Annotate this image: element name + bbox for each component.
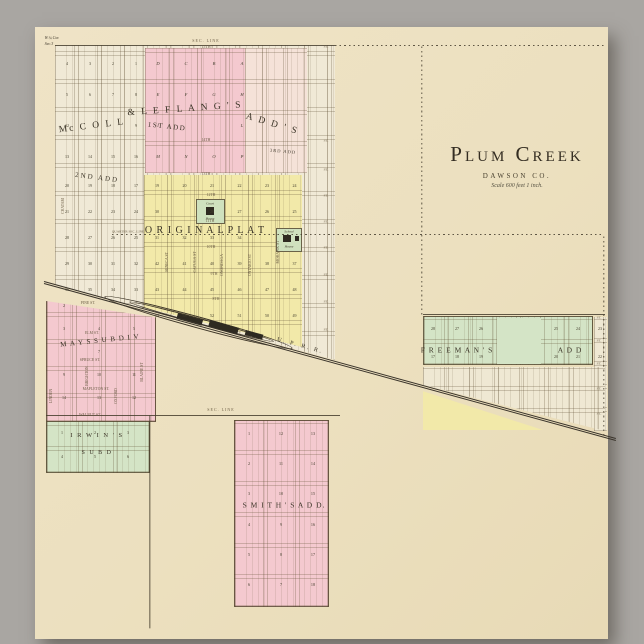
blocks-smiths-cell: 11 — [279, 462, 283, 466]
blocks-original-plat-cell: 22 — [238, 184, 242, 188]
blocks-irwins-cell: 1 — [61, 431, 63, 435]
blocks-smiths-cell: 14 — [311, 462, 315, 466]
blocks-second-add-cell: 28 — [65, 236, 69, 240]
label-sec-line-bottom: SEC. LINE — [207, 408, 234, 412]
blocks-irwins-cell: 4 — [61, 455, 63, 459]
blocks-first-add-cell: E — [157, 93, 160, 98]
blocks-first-add-cell: C — [184, 62, 187, 67]
blocks-second-add-cell: 30 — [88, 262, 92, 266]
blocks-original-plat-cell: 32 — [183, 236, 187, 240]
zone-irwins-sub — [46, 421, 150, 473]
blocks-second-add-cell: 17 — [134, 184, 138, 188]
blocks-first-add-cell: B — [213, 62, 216, 67]
blocks-freemans-east-cell: 20 — [554, 355, 558, 359]
street-end-marks-west: ST. — [324, 220, 329, 224]
blocks-freemans-west-cell: 28 — [431, 327, 435, 331]
blocks-smiths-cell: 7 — [280, 583, 282, 587]
blocks-mccoll-cell: 9 — [135, 124, 137, 128]
blocks-original-plat-cell: 52 — [210, 314, 214, 318]
blocks-original-plat-cell: 33 — [210, 236, 214, 240]
label-quarter-sec-line: QUARTER SEC. LINE — [112, 230, 144, 233]
map-scale: Scale 600 feet 1 inch. — [428, 183, 606, 189]
blocks-freemans-west-cell: 19 — [479, 355, 483, 359]
blocks-original-plat-cell: 54 — [155, 314, 159, 318]
blocks-first-add-cell: F — [185, 93, 188, 98]
blocks-smiths-cell: 18 — [311, 583, 315, 587]
blocks-original-plat-cell: 25 — [293, 210, 297, 214]
label-ontario-st: ONTARIO ST — [249, 254, 253, 276]
street-end-marks-west: ST. — [324, 168, 329, 172]
blocks-second-add-cell: 23 — [111, 210, 115, 214]
blocks-second-add-cell: 29 — [65, 262, 69, 266]
blocks-second-add-cell: 18 — [111, 184, 115, 188]
blocks-original-plat-cell: 53 — [183, 314, 187, 318]
sec-line-top — [55, 45, 335, 46]
blocks-first-add-cell: A — [241, 62, 244, 67]
label-blaine-st: BLAINE ST — [141, 362, 145, 381]
blocks-mccoll-cell: 6 — [89, 93, 91, 97]
label-brighton-st: BRIGHTON — [86, 366, 90, 386]
blocks-mccoll-cell: 5 — [66, 93, 68, 97]
blocks-irwins-cell: 3 — [127, 431, 129, 435]
plat-map: SEC. LINE15THW.¼ Cor.Sec.3Mc C O L L& L … — [0, 0, 644, 644]
blocks-original-plat-cell: 21 — [210, 184, 214, 188]
label-spruce-st: SPRUCE ST. — [80, 359, 100, 363]
blocks-second-add-cell: 36 — [65, 288, 69, 292]
blocks-original-plat-cell: 26 — [265, 210, 269, 214]
blocks-original-plat-cell: 39 — [238, 262, 242, 266]
blocks-mccoll-cell: 7 — [112, 93, 114, 97]
blocks-freemans-west-cell: 18 — [455, 355, 459, 359]
blocks-mays-cell: 13 — [97, 396, 101, 400]
label-13th-st: 13TH — [202, 173, 211, 177]
blocks-first-add-cell: G — [212, 93, 215, 98]
blocks-mays-cell: 5 — [133, 327, 135, 331]
blocks-first-add-cell: H — [240, 93, 243, 98]
blocks-second-add-cell: 35 — [88, 288, 92, 292]
blocks-mays-cell: 7 — [98, 350, 100, 354]
label-pine-st: PINE ST. — [81, 302, 96, 306]
label-elm-st: ELM ST. — [85, 332, 99, 336]
blocks-smiths-cell: 1 — [248, 432, 250, 436]
blocks-original-plat-cell: 48 — [293, 288, 297, 292]
blocks-smiths-cell: 12 — [279, 432, 283, 436]
street-end-marks-west: ST. — [324, 194, 329, 198]
blocks-irwins-cell: 2 — [94, 431, 96, 435]
blocks-original-plat-cell: 38 — [265, 262, 269, 266]
blocks-second-add-cell: 27 — [88, 236, 92, 240]
blocks-freemans-west-cell: 17 — [431, 355, 435, 359]
blocks-freemans-east-cell: 21 — [576, 355, 580, 359]
label-court-house-1: Court — [206, 202, 214, 205]
blocks-original-plat-cell: 47 — [265, 288, 269, 292]
blocks-second-add-cell: 20 — [65, 184, 69, 188]
blocks-first-add-cell: L — [241, 124, 244, 129]
blocks-mccoll-cell: 2 — [112, 62, 114, 66]
map-title: Plum Creek — [428, 142, 606, 167]
blocks-original-plat-cell: 46 — [238, 288, 242, 292]
street-end-marks-west: ST. — [324, 246, 329, 250]
label-irwins-2: S U B D — [81, 450, 112, 456]
blocks-smiths-cell: 4 — [248, 522, 250, 526]
blocks-smiths-cell: 2 — [248, 462, 250, 466]
blocks-original-plat-cell: 42 — [155, 262, 159, 266]
blocks-mccoll-cell: 1 — [135, 62, 137, 66]
label-school-house-1: School — [284, 230, 293, 233]
label-oxford-st: OXFORD — [115, 388, 119, 404]
blocks-smiths-cell: 6 — [248, 583, 250, 587]
blocks-first-add-cell: P — [241, 155, 244, 160]
blocks-mccoll-cell: 14 — [88, 155, 92, 159]
blocks-mays-cell: 12 — [132, 396, 136, 400]
label-12th-st: 12TH — [207, 194, 216, 198]
blocks-freemans-west-cell: 26 — [479, 327, 483, 331]
meridian-line-south — [150, 415, 151, 628]
blocks-mays-cell: 2 — [63, 304, 65, 308]
label-9th-st: 9TH — [211, 273, 218, 277]
blocks-mccoll-cell: 8 — [135, 93, 137, 97]
label-original-plat: O R I G I N A L P L A T — [145, 226, 265, 236]
blocks-second-add-cell: 32 — [134, 262, 138, 266]
blocks-original-plat-cell: 24 — [293, 184, 297, 188]
blocks-freemans-east-cell: 24 — [576, 327, 580, 331]
street-end-marks-west: ST. — [324, 45, 329, 49]
blocks-mccoll-cell: 4 — [66, 62, 68, 66]
zone-mays-sub — [46, 296, 156, 422]
label-cayuga-st: CAYUGA ST — [194, 251, 198, 272]
section-line-vertical — [422, 46, 423, 315]
label-corner-note-1: W.¼ Cor. — [45, 36, 60, 40]
label-mapleton-st: MAPLETON ST. — [83, 388, 110, 392]
blocks-mccoll-cell: 15 — [111, 155, 115, 159]
label-freemans-2: A D D — [558, 346, 583, 354]
icon-school-annex — [295, 236, 299, 241]
street-end-marks-west: ST. — [324, 328, 329, 332]
zone-first-add-east — [245, 48, 307, 173]
blocks-mays-cell: 4 — [98, 327, 100, 331]
blocks-original-plat-cell: 27 — [238, 210, 242, 214]
blocks-mays-cell: 3 — [63, 327, 65, 331]
blocks-mccoll-cell: 16 — [134, 155, 138, 159]
label-11th-st: 11TH — [206, 220, 215, 224]
blocks-smiths-cell: 8 — [280, 553, 282, 557]
blocks-irwins-cell: 6 — [127, 455, 129, 459]
icon-school-house — [283, 235, 291, 242]
blocks-second-add-cell: 19 — [88, 184, 92, 188]
blocks-second-add-cell: 34 — [111, 288, 115, 292]
blocks-first-add-cell: D — [156, 62, 159, 67]
label-mohawk-st: MOHAWK ST — [277, 240, 281, 263]
label-14th-st: 14TH — [202, 139, 211, 143]
label-linden-st: LINDEN — [50, 389, 54, 403]
blocks-original-plat-cell: 30 — [155, 210, 159, 214]
map-county: DAWSON CO. — [428, 172, 606, 180]
blocks-mays-cell: 14 — [62, 396, 66, 400]
label-15th-st: 15TH — [201, 45, 210, 49]
street-end-marks-east: ST. — [597, 387, 602, 391]
blocks-first-add-cell: M — [156, 155, 160, 160]
blocks-smiths-cell: 5 — [248, 553, 250, 557]
street-end-marks-east: ST. — [597, 339, 602, 343]
map-title-block: Plum Creek DAWSON CO. Scale 600 feet 1 i… — [428, 142, 606, 189]
blocks-freemans-west-cell: 27 — [455, 327, 459, 331]
blocks-freemans-east-cell: 23 — [598, 327, 602, 331]
blocks-mccoll-cell: 12 — [65, 124, 69, 128]
blocks-second-add-cell: 25 — [134, 236, 138, 240]
blocks-first-add-cell: I — [157, 124, 159, 129]
blocks-original-plat-cell: 19 — [155, 184, 159, 188]
zone-smiths-add — [234, 420, 329, 607]
blocks-original-plat-cell: 34 — [238, 236, 242, 240]
blocks-original-plat-cell: 50 — [265, 314, 269, 318]
blocks-irwins-cell: 5 — [94, 455, 96, 459]
blocks-original-plat-cell: 20 — [183, 184, 187, 188]
blocks-mays-cell: 11 — [132, 373, 136, 377]
label-seneca-st: SENECA ST — [166, 252, 170, 272]
blocks-first-add-cell: N — [184, 155, 187, 160]
label-onondaga-st: ONONDAGA — [221, 254, 225, 276]
east-boundary-line — [604, 236, 605, 436]
street-end-marks-east: ST. — [597, 316, 602, 320]
label-walnut-st: WALNUT ST. — [79, 414, 101, 418]
label-school-house-2: House — [285, 245, 294, 248]
label-freemans-1: F R E E M A N ' S — [421, 346, 494, 354]
sec-line-top-east — [335, 45, 605, 46]
blocks-second-add-cell: 22 — [88, 210, 92, 214]
blocks-original-plat-cell: 44 — [183, 288, 187, 292]
blocks-smiths-cell: 3 — [248, 492, 250, 496]
blocks-original-plat-cell: 40 — [210, 262, 214, 266]
blocks-second-add-cell: 31 — [111, 262, 115, 266]
blocks-second-add-cell: 26 — [111, 236, 115, 240]
blocks-mccoll-cell: 3 — [89, 62, 91, 66]
blocks-second-add-cell: 24 — [134, 210, 138, 214]
label-10th-st: 10TH — [207, 246, 216, 250]
blocks-smiths-cell: 10 — [279, 492, 283, 496]
blocks-original-plat-cell: 41 — [183, 262, 187, 266]
label-smiths-add: S M I T H ' S A D D. — [243, 501, 326, 509]
label-irwins-1: I R W I N ' S — [70, 433, 123, 440]
blocks-smiths-cell: 9 — [280, 522, 282, 526]
blocks-original-plat-cell: 43 — [155, 288, 159, 292]
blocks-smiths-cell: 13 — [311, 432, 315, 436]
blocks-original-plat-cell: 49 — [293, 314, 297, 318]
street-end-marks-west: ST. — [324, 139, 329, 143]
label-sec-line-top: SEC. LINE — [192, 39, 219, 43]
blocks-original-plat-cell: 45 — [210, 288, 214, 292]
blocks-original-plat-cell: 28 — [210, 210, 214, 214]
street-end-marks-west: ST. — [324, 273, 329, 277]
street-end-marks-west: ST. — [324, 300, 329, 304]
blocks-mays-cell: 10 — [97, 373, 101, 377]
blocks-smiths-cell: 17 — [311, 553, 315, 557]
blocks-smiths-cell: 15 — [311, 492, 315, 496]
blocks-second-add-cell: 21 — [65, 210, 69, 214]
blocks-smiths-cell: 16 — [311, 522, 315, 526]
street-end-marks-east: ST. — [597, 362, 602, 366]
blocks-first-add-cell: O — [212, 155, 215, 160]
blocks-mccoll-cell: 13 — [65, 155, 69, 159]
freemans-north-line — [423, 314, 605, 315]
blocks-original-plat-cell: 23 — [265, 184, 269, 188]
label-corner-note-2: Sec.3 — [45, 42, 54, 46]
blocks-freemans-east-cell: 22 — [598, 355, 602, 359]
screenshot-root: SEC. LINE15THW.¼ Cor.Sec.3Mc C O L L& L … — [0, 0, 644, 644]
street-end-marks-east: ST. — [597, 412, 602, 416]
blocks-original-plat-cell: 31 — [155, 236, 159, 240]
label-8th-st: 8TH — [213, 298, 220, 302]
blocks-mays-cell: 9 — [63, 373, 65, 377]
blocks-second-add-cell: 33 — [134, 288, 138, 292]
blocks-original-plat-cell: 51 — [238, 314, 242, 318]
zone-freemans-open-block — [497, 318, 541, 364]
blocks-original-plat-cell: 37 — [293, 262, 297, 266]
blocks-freemans-east-cell: 25 — [554, 327, 558, 331]
